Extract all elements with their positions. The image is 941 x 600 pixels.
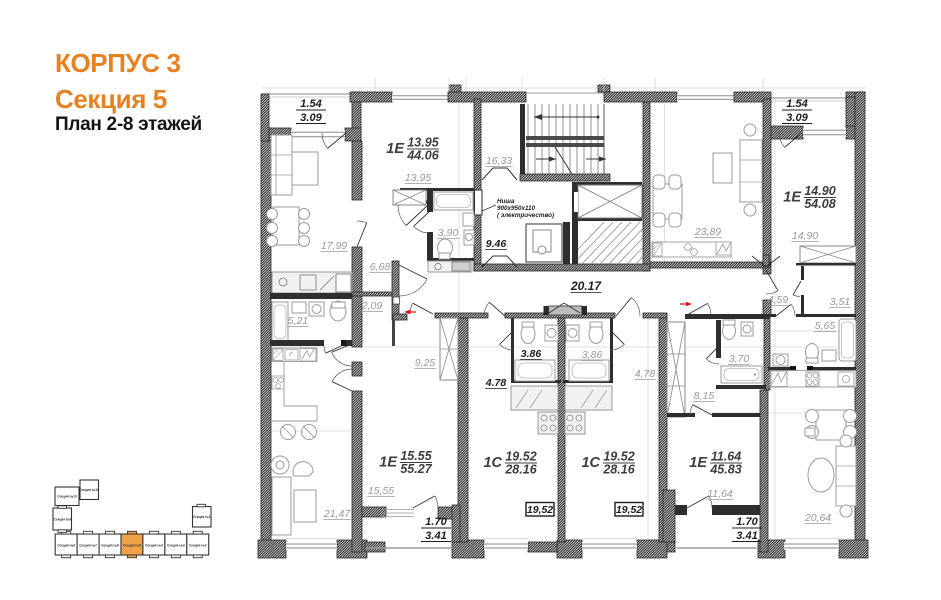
svg-text:3,90: 3,90 [438, 227, 459, 239]
svg-text:3,86: 3,86 [582, 349, 603, 361]
svg-text:17,99: 17,99 [321, 240, 347, 252]
svg-text:14,90: 14,90 [792, 230, 818, 242]
svg-text:КОРПУС 3: КОРПУС 3 [55, 48, 181, 78]
svg-text:Секция №8: Секция №8 [57, 544, 75, 548]
svg-text:Секция №7: Секция №7 [79, 544, 97, 548]
svg-text:Секция №3: Секция №3 [167, 544, 185, 548]
svg-text:20.17: 20.17 [570, 279, 602, 293]
svg-text:Секция №10: Секция №10 [57, 495, 77, 499]
svg-text:1.70: 1.70 [736, 516, 758, 528]
svg-text:Секция №11: Секция №11 [79, 488, 98, 492]
svg-text:Секция №2: Секция №2 [189, 544, 207, 548]
svg-text:20,64: 20,64 [804, 512, 831, 524]
svg-text:8,15: 8,15 [694, 390, 715, 402]
svg-text:9,25: 9,25 [415, 357, 436, 369]
svg-text:9.46: 9.46 [486, 238, 507, 250]
svg-text:3.09: 3.09 [786, 112, 808, 124]
svg-text:1Е: 1Е [689, 455, 708, 471]
svg-text:16,33: 16,33 [486, 155, 512, 167]
svg-text:3.41: 3.41 [425, 530, 446, 542]
svg-text:11,64: 11,64 [707, 488, 733, 500]
svg-text:Секция 5: Секция 5 [55, 84, 167, 114]
svg-text:28.16: 28.16 [504, 463, 537, 477]
svg-text:28.16: 28.16 [602, 463, 635, 477]
svg-text:Ниша: Ниша [497, 198, 515, 205]
svg-text:1С: 1С [483, 455, 502, 471]
svg-text:21,47: 21,47 [323, 508, 351, 520]
svg-text:19.52: 19.52 [603, 450, 634, 464]
svg-text:1Е: 1Е [379, 455, 398, 471]
svg-text:44.06: 44.06 [406, 149, 439, 163]
svg-text:2,09: 2,09 [361, 300, 383, 312]
svg-text:Секция №6: Секция №6 [101, 544, 119, 548]
svg-text:23,89: 23,89 [694, 226, 721, 238]
svg-text:19,52: 19,52 [527, 504, 553, 516]
svg-text:13.95: 13.95 [407, 136, 439, 150]
svg-text:План 2-8 этажей: План 2-8 этажей [55, 114, 202, 135]
svg-text:1Е: 1Е [783, 190, 802, 206]
svg-text:Секция №9: Секция №9 [54, 518, 72, 522]
svg-text:5,65: 5,65 [815, 320, 836, 332]
svg-text:13,95: 13,95 [405, 172, 431, 184]
svg-text:1.54: 1.54 [786, 98, 807, 110]
svg-text:45.83: 45.83 [709, 463, 741, 477]
svg-text:( электричество): ( электричество) [497, 212, 554, 219]
svg-text:3.86: 3.86 [521, 348, 542, 360]
svg-text:19.52: 19.52 [505, 450, 536, 464]
svg-text:14.90: 14.90 [804, 184, 835, 198]
svg-text:11.64: 11.64 [711, 450, 741, 464]
svg-text:55.27: 55.27 [400, 462, 432, 476]
svg-text:54.08: 54.08 [804, 197, 835, 211]
svg-text:1С: 1С [581, 455, 600, 471]
svg-text:3.41: 3.41 [736, 530, 757, 542]
svg-text:4,78: 4,78 [635, 368, 656, 380]
svg-text:1Е: 1Е [386, 141, 405, 157]
svg-text:3,70: 3,70 [729, 353, 750, 365]
svg-text:4,59: 4,59 [768, 294, 789, 306]
svg-text:900х950х110: 900х950х110 [497, 205, 536, 212]
svg-text:Секция №5: Секция №5 [123, 544, 141, 548]
svg-text:Секция №1: Секция №1 [193, 515, 211, 519]
svg-text:5,21: 5,21 [288, 315, 308, 327]
svg-text:3,51: 3,51 [830, 296, 850, 308]
svg-text:15,55: 15,55 [368, 485, 394, 497]
svg-text:19,52: 19,52 [616, 504, 642, 516]
svg-text:Секция №4: Секция №4 [145, 544, 163, 548]
svg-text:3.09: 3.09 [300, 112, 322, 124]
svg-text:6,68: 6,68 [370, 261, 391, 273]
svg-text:4.78: 4.78 [485, 377, 507, 389]
svg-text:1.70: 1.70 [425, 516, 447, 528]
svg-text:1.54: 1.54 [300, 98, 321, 110]
svg-text:15.55: 15.55 [400, 449, 432, 463]
